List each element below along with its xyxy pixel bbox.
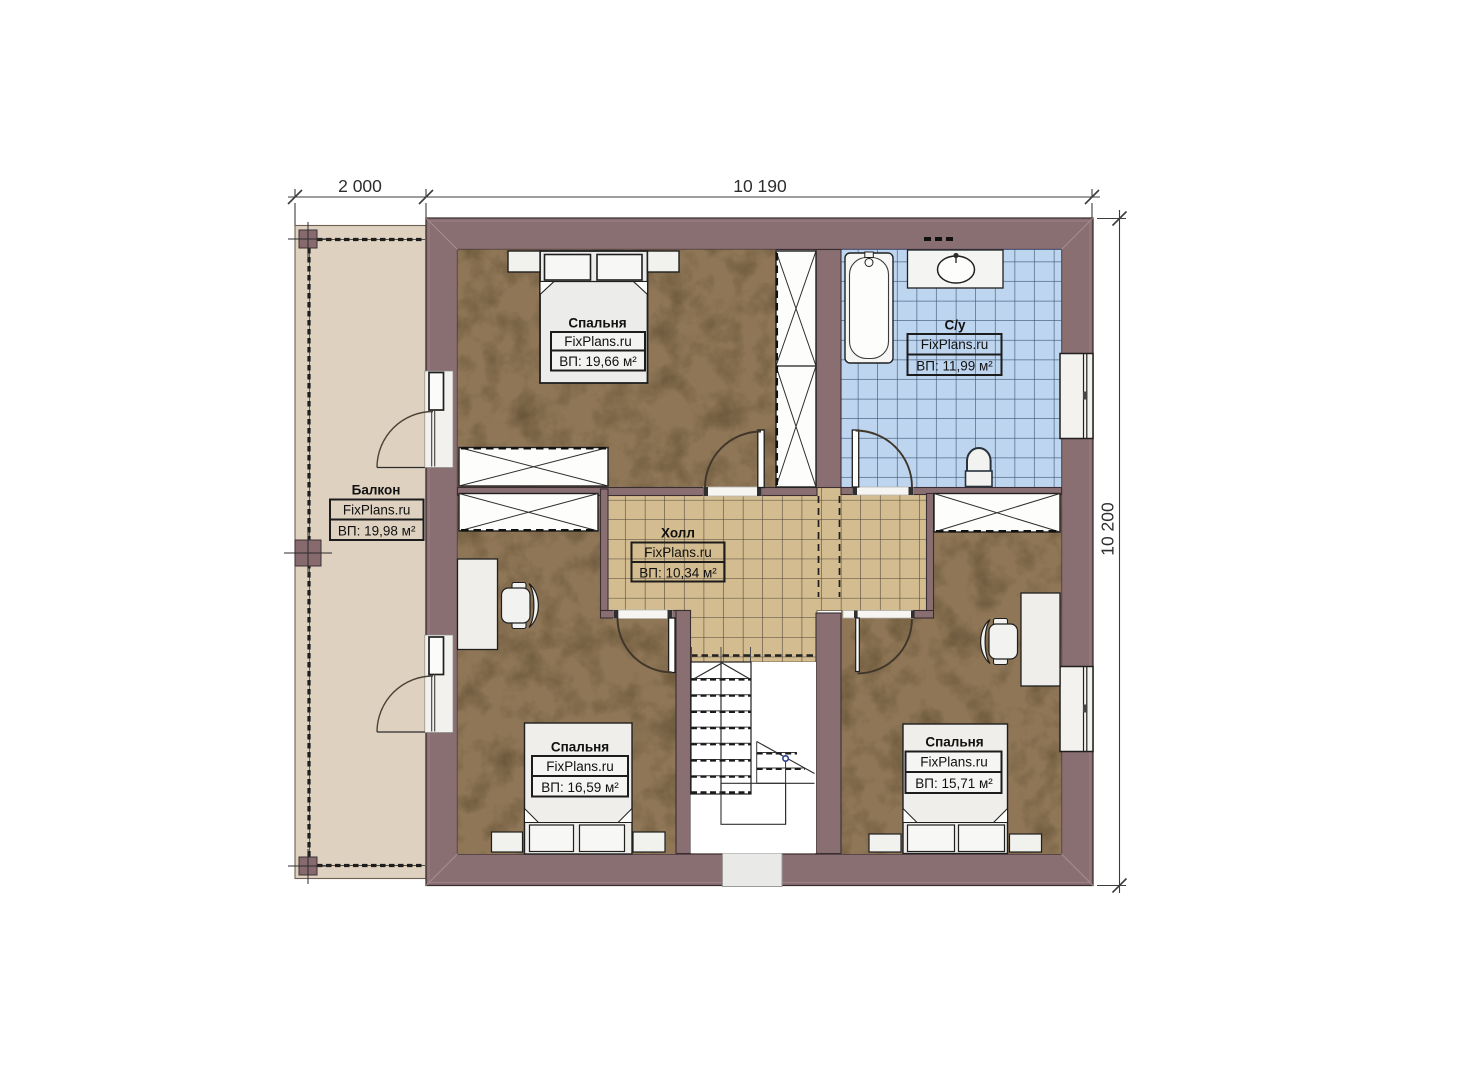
svg-text:FixPlans.ru: FixPlans.ru	[644, 545, 712, 560]
svg-text:10 190: 10 190	[733, 176, 787, 196]
svg-text:ВП: 11,99 м²: ВП: 11,99 м²	[916, 359, 993, 374]
svg-text:ВП: 19,66 м²: ВП: 19,66 м²	[559, 354, 637, 369]
svg-text:Спальня: Спальня	[925, 735, 983, 750]
svg-text:ВП: 16,59 м²: ВП: 16,59 м²	[541, 780, 619, 795]
svg-text:Холл: Холл	[661, 526, 695, 541]
svg-text:FixPlans.ru: FixPlans.ru	[343, 503, 411, 518]
svg-text:FixPlans.ru: FixPlans.ru	[546, 759, 614, 774]
svg-text:С/у: С/у	[944, 318, 966, 333]
svg-text:FixPlans.ru: FixPlans.ru	[564, 334, 632, 349]
svg-text:FixPlans.ru: FixPlans.ru	[920, 755, 988, 770]
svg-text:ВП: 19,98 м²: ВП: 19,98 м²	[338, 524, 416, 539]
svg-text:2 000: 2 000	[338, 176, 382, 196]
svg-text:FixPlans.ru: FixPlans.ru	[921, 337, 989, 352]
svg-text:Спальня: Спальня	[551, 740, 609, 755]
svg-text:ВП: 10,34 м²: ВП: 10,34 м²	[639, 566, 717, 581]
svg-text:Спальня: Спальня	[568, 316, 626, 331]
svg-text:10 200: 10 200	[1098, 502, 1118, 556]
svg-text:Балкон: Балкон	[352, 483, 401, 498]
svg-text:ВП: 15,71 м²: ВП: 15,71 м²	[915, 776, 993, 791]
